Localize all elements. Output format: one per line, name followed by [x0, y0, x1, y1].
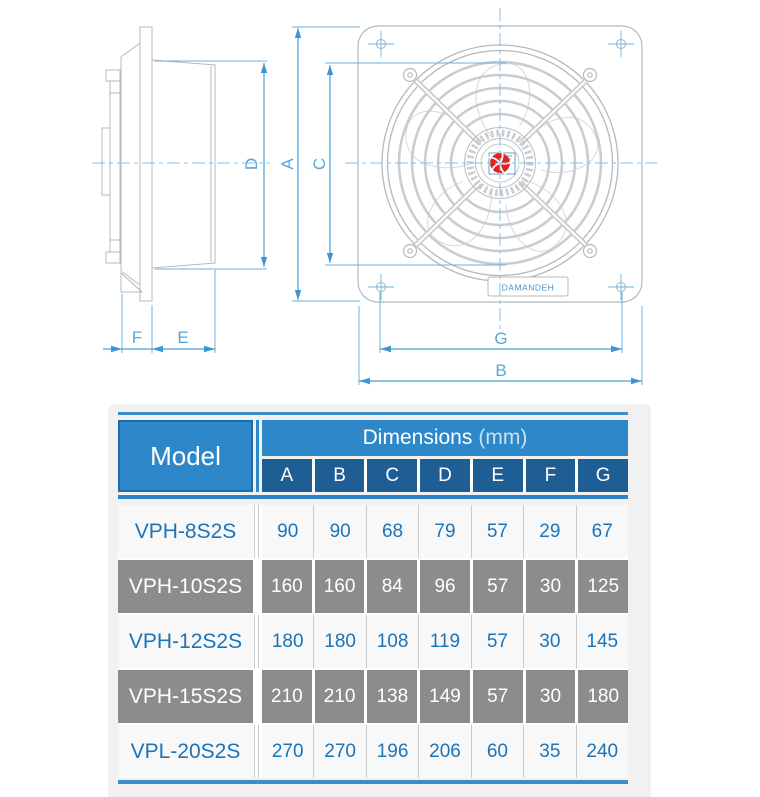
- model-name-cell: VPH-10S2S: [118, 560, 253, 613]
- dimensions-table: Model Dimensions (mm) A B C D E F G VPH-…: [118, 412, 628, 784]
- unit-label: (mm): [478, 426, 527, 450]
- value-cell: 149: [420, 670, 470, 723]
- foot-bracket: [121, 273, 142, 292]
- table-rows: VPH-8S2S 90 90 68 79 57 29 67 VPH-10S2S …: [118, 505, 628, 778]
- value-cell: 196: [366, 725, 418, 778]
- dim-label-F: F: [132, 328, 142, 347]
- model-header-cell: Model: [118, 420, 253, 492]
- motor-body: [102, 128, 110, 195]
- table-row: VPL-20S2S 270 270 196 206 60 35 240: [118, 725, 628, 778]
- value-cell: 240: [576, 725, 628, 778]
- column-header-g: G: [578, 459, 628, 492]
- column-header-e: E: [473, 459, 523, 492]
- value-cell: 60: [471, 725, 523, 778]
- table-row: VPH-8S2S 90 90 68 79 57 29 67: [118, 505, 628, 558]
- side-view: [102, 27, 215, 301]
- value-cell: 270: [313, 725, 365, 778]
- value-cell: 125: [578, 560, 628, 613]
- value-cell: 57: [473, 670, 523, 723]
- value-cell: 68: [366, 505, 418, 558]
- dimensions-header-cell: Dimensions (mm): [262, 420, 628, 456]
- value-cell: 30: [523, 615, 575, 668]
- table-row: VPH-10S2S 160 160 84 96 57 30 125: [118, 560, 628, 613]
- column-header-d: D: [420, 459, 470, 492]
- value-cell: 180: [262, 615, 313, 668]
- value-cell: 30: [526, 670, 576, 723]
- value-cell: 210: [315, 670, 365, 723]
- value-cell: 29: [523, 505, 575, 558]
- value-cell: 180: [313, 615, 365, 668]
- value-cell: 57: [471, 615, 523, 668]
- dim-label-A: A: [278, 158, 297, 170]
- dim-label-G: G: [494, 329, 507, 348]
- model-name-cell: VPH-15S2S: [118, 670, 253, 723]
- value-cell: 160: [262, 560, 312, 613]
- value-cell: 84: [367, 560, 417, 613]
- value-cell: 67: [576, 505, 628, 558]
- side-cover-panel: [121, 43, 140, 285]
- value-cell: 145: [576, 615, 628, 668]
- column-header-f: F: [526, 459, 576, 492]
- dimensions-header-group: Dimensions (mm) A B C D E F G: [262, 420, 628, 492]
- model-name-cell: VPH-8S2S: [118, 505, 253, 558]
- value-cell: 35: [523, 725, 575, 778]
- value-cell: 79: [418, 505, 470, 558]
- dimensions-label: Dimensions: [363, 426, 473, 450]
- value-cell: 90: [313, 505, 365, 558]
- fan-dimension-sheet: { "diagram": { "dimension_labels": {"A":…: [0, 0, 760, 797]
- table-row: VPH-12S2S 180 180 108 119 57 30 145: [118, 615, 628, 668]
- header-underline: [118, 495, 628, 499]
- value-cell: 57: [473, 560, 523, 613]
- side-duct: [152, 60, 215, 268]
- table-top-rule: [118, 412, 628, 415]
- value-cell: 270: [262, 725, 313, 778]
- value-cell: 119: [418, 615, 470, 668]
- dim-label-B: B: [495, 361, 506, 380]
- column-header-b: B: [315, 459, 365, 492]
- model-name-cell: VPH-12S2S: [118, 615, 253, 668]
- value-cell: 206: [418, 725, 470, 778]
- model-name-cell: VPL-20S2S: [118, 725, 253, 778]
- table-bottom-rule: [118, 780, 628, 784]
- value-cell: 138: [367, 670, 417, 723]
- value-cell: 210: [262, 670, 312, 723]
- value-cell: 96: [420, 560, 470, 613]
- value-cell: 57: [471, 505, 523, 558]
- column-header-a: A: [262, 459, 312, 492]
- brand-plate-label: DAMANDEH: [502, 283, 555, 293]
- column-letters-row: A B C D E F G: [262, 459, 628, 492]
- motor-housing: [106, 70, 120, 81]
- value-cell: 90: [262, 505, 313, 558]
- front-view: DAMANDEH: [345, 8, 657, 332]
- value-cell: 160: [315, 560, 365, 613]
- dim-label-C: C: [310, 158, 329, 170]
- table-row: VPH-15S2S 210 210 138 149 57 30 180: [118, 670, 628, 723]
- fan-technical-drawing: DAMANDEH: [0, 0, 760, 404]
- dim-label-E: E: [177, 328, 188, 347]
- table-header: Model Dimensions (mm) A B C D E F G: [118, 420, 628, 492]
- column-header-c: C: [367, 459, 417, 492]
- value-cell: 180: [578, 670, 628, 723]
- dim-label-D: D: [242, 158, 261, 170]
- header-gap: [253, 420, 262, 492]
- value-cell: 108: [366, 615, 418, 668]
- side-mounting-plate: [140, 27, 152, 301]
- extension-lines: [122, 27, 642, 385]
- value-cell: 30: [526, 560, 576, 613]
